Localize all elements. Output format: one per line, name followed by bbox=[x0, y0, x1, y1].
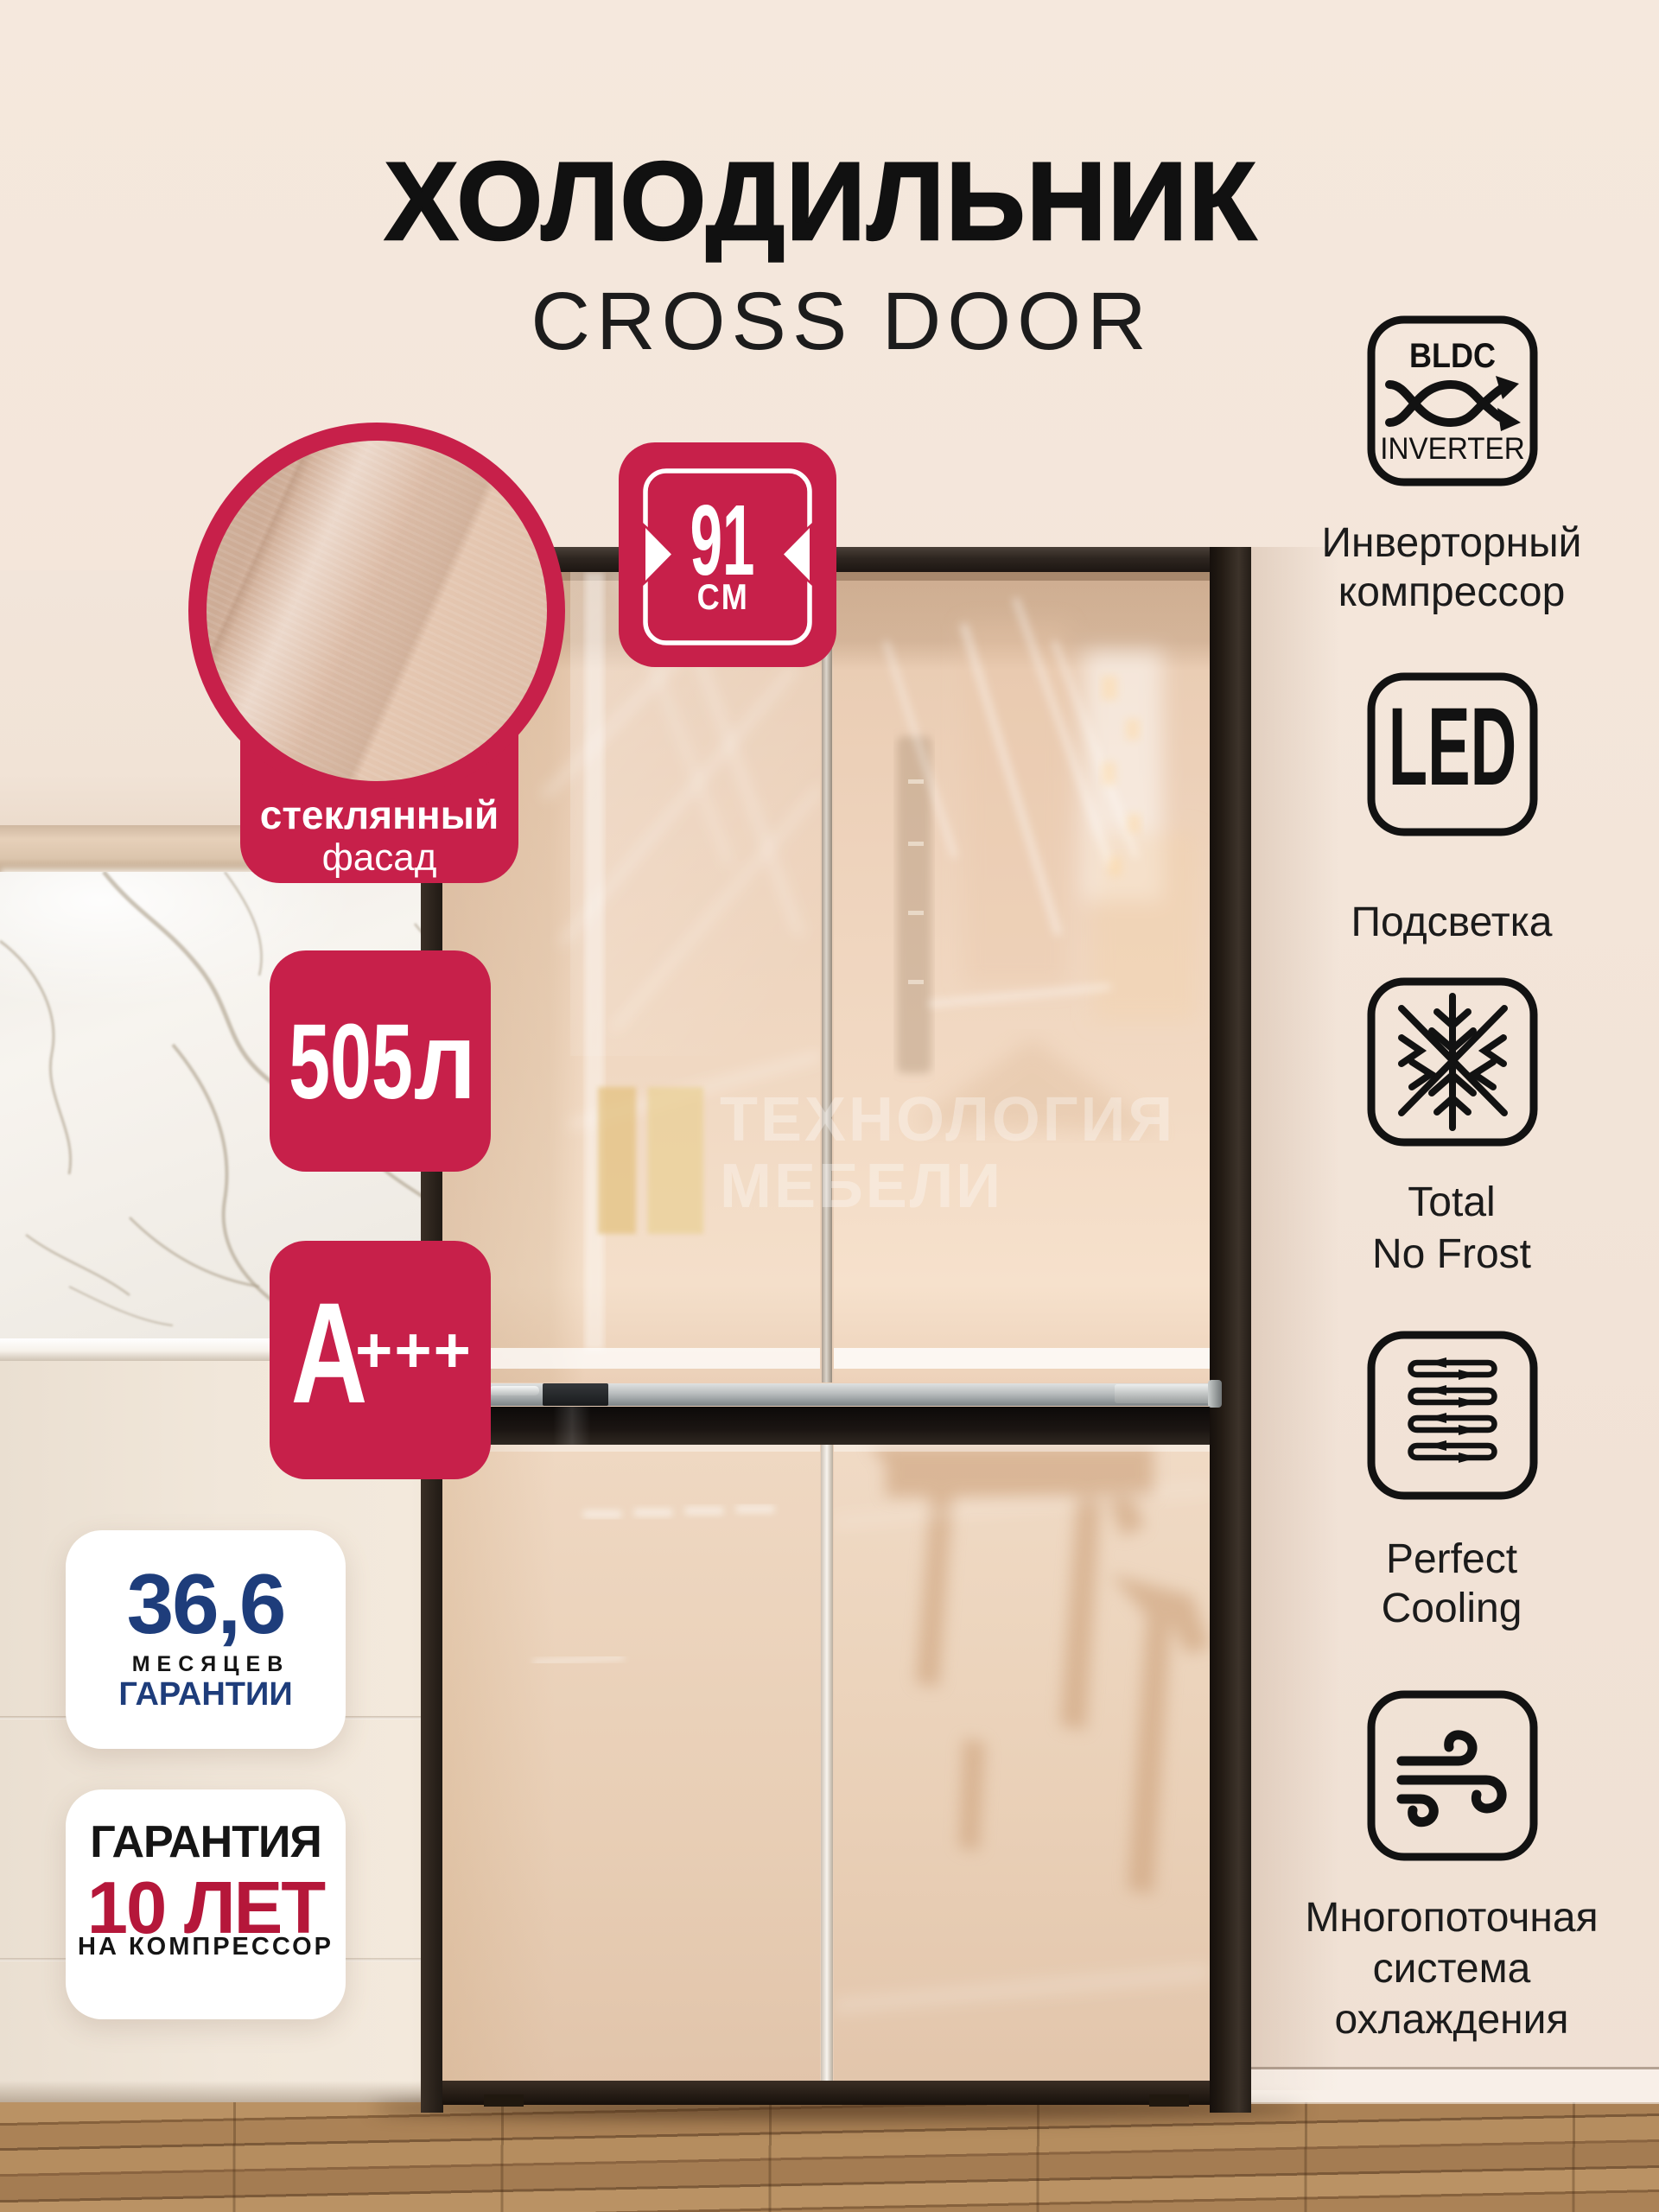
svg-text:л: л bbox=[414, 1000, 476, 1122]
svg-text:BLDC: BLDC bbox=[1409, 337, 1496, 375]
svg-text:LED: LED bbox=[1389, 685, 1516, 809]
svg-text:INVERTER: INVERTER bbox=[1380, 432, 1524, 466]
svg-text:СМ: СМ bbox=[697, 578, 750, 618]
svg-text:+++: +++ bbox=[355, 1314, 473, 1386]
svg-text:505: 505 bbox=[289, 1003, 413, 1122]
